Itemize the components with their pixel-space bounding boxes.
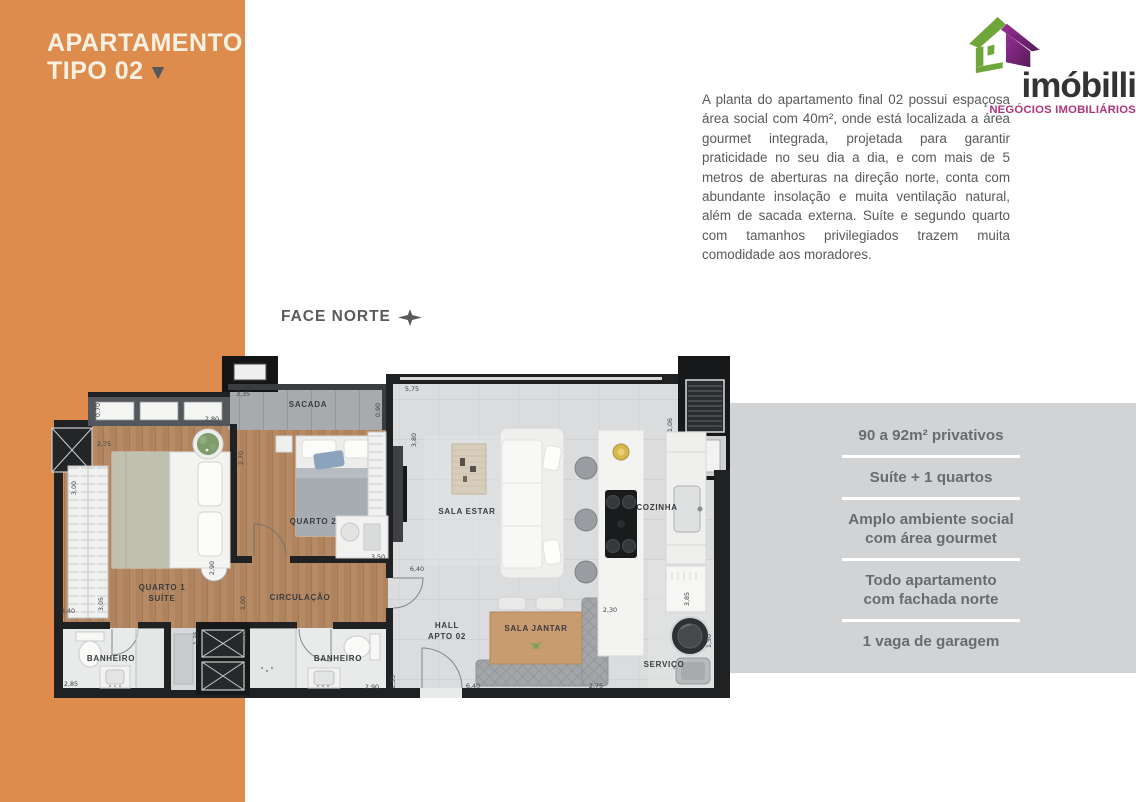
dimension-label: 0,90 [374, 403, 382, 417]
dimension-label: 2,85 [64, 680, 78, 688]
vanity-left [100, 666, 130, 688]
dimension-label: 1,06 [666, 418, 674, 432]
dimension-label: 2,30 [603, 606, 617, 614]
room-label: SUÍTE [148, 594, 175, 603]
room-label: SERVIÇO [644, 660, 685, 669]
room-label: QUARTO 1 [139, 583, 186, 592]
vanity-right [308, 668, 340, 688]
dimension-label: 3,85 [683, 592, 691, 606]
dimension-label: 3,00 [70, 481, 78, 495]
bedroom-windows [96, 402, 222, 420]
dimension-label: 3,80 [410, 433, 418, 447]
kitchen-counter [666, 432, 706, 564]
room-label: BANHEIRO [87, 654, 135, 663]
dimension-label: 2,90 [365, 683, 379, 691]
dimension-label: 3,05 [97, 597, 105, 611]
dimension-label: 6,40 [410, 565, 424, 573]
dining-table [490, 612, 582, 664]
dimension-label: 2,75 [97, 440, 111, 448]
shower-left [136, 628, 164, 688]
closet-quarto2 [368, 432, 386, 520]
dimension-label: 1,35 [389, 675, 397, 689]
cabinet [174, 634, 193, 684]
cooktop [605, 490, 637, 558]
logo-tagline: NEGÓCIOS IMOBILIÁRIOS [936, 104, 1136, 116]
duct-shaft-left [52, 428, 92, 472]
room-label: HALL [435, 621, 459, 630]
room-label: BANHEIRO [314, 654, 362, 663]
bed-quarto1 [112, 452, 230, 568]
room-label: SALA JANTAR [504, 624, 567, 633]
dimension-label: 2,70 [237, 451, 245, 465]
logo-house-icon [964, 12, 1048, 74]
dimension-label: 0,70 [94, 403, 102, 417]
dimension-label: 2,75 [589, 682, 603, 690]
dimension-label: 6,40 [466, 682, 480, 690]
entry-door-opening [420, 688, 462, 698]
room-label: SALA ESTAR [438, 507, 495, 516]
room-label: QUARTO 2 [290, 517, 337, 526]
dimension-label: 3,40 [61, 607, 75, 615]
plant-table [193, 429, 223, 459]
room-label: SACADA [289, 400, 327, 409]
dimension-label: 2,80 [205, 415, 219, 423]
logo-wordmark: imóbilli [936, 68, 1136, 103]
tv-rack [452, 444, 486, 494]
company-logo: imóbilli NEGÓCIOS IMOBILIÁRIOS [936, 12, 1136, 116]
bar-stools [575, 457, 597, 583]
dimension-label: 1,50 [705, 634, 713, 648]
floor-plan: SACADAQUARTO 1SUÍTEQUARTO 2CIRCULAÇÃOSAL… [0, 0, 1136, 802]
desk-quarto2 [336, 516, 388, 558]
room-label: APTO 02 [428, 632, 466, 641]
dimension-label: 1,00 [239, 596, 247, 610]
sofa [500, 428, 564, 578]
dimension-label: 1,35 [192, 631, 200, 645]
dimension-label: 5,75 [405, 385, 419, 393]
dimension-label: 2,90 [208, 561, 216, 575]
dimension-label: 3,35 [236, 390, 250, 398]
nightstand-quarto2 [276, 436, 292, 452]
shower-right [250, 628, 296, 688]
kitchen-sink [674, 486, 700, 532]
dimension-label: 3,50 [371, 553, 385, 561]
washing-machine [671, 617, 709, 655]
room-label: COZINHA [636, 503, 677, 512]
dimension-label: 1,35 [240, 630, 248, 644]
room-label: CIRCULAÇÃO [270, 593, 331, 602]
